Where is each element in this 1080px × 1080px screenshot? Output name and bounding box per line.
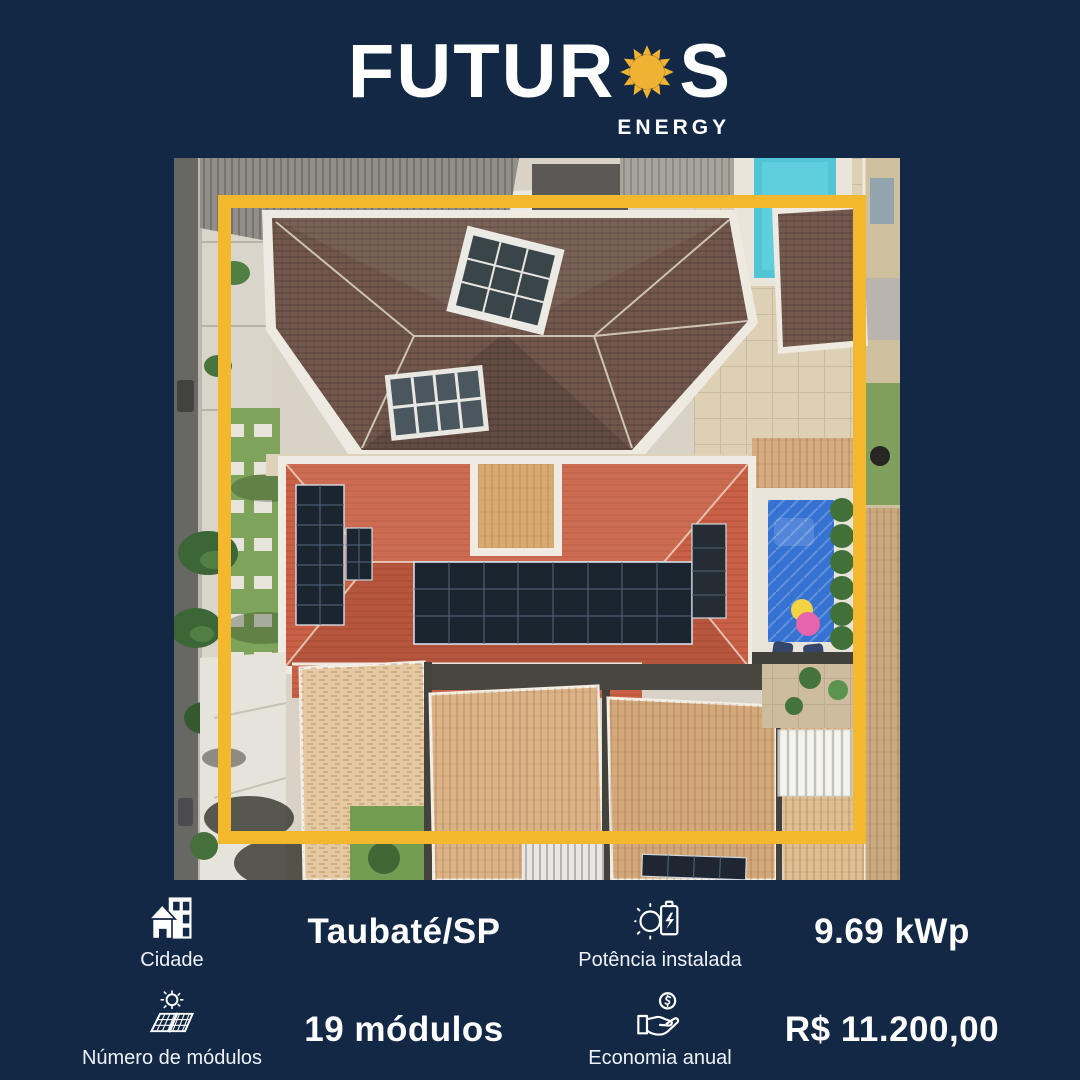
brand-name-prefix: FUTUR <box>348 34 616 110</box>
stat-value-modules: 19 módulos <box>280 1010 528 1050</box>
sun-icon <box>616 41 678 103</box>
brand-logo-box: FUTUR <box>348 34 732 140</box>
poster: FUTUR <box>0 0 1080 1080</box>
yellow-highlight-frame <box>218 195 866 844</box>
brand-subtitle: ENERGY <box>617 116 730 140</box>
stat-modules: Número de módulos 19 módulos <box>64 986 528 1074</box>
stats-grid: Cidade Taubaté/SP Potência instalada 9.6… <box>0 888 1080 1074</box>
city-buildings-icon <box>146 892 198 944</box>
stat-savings: Economia anual R$ 11.200,00 <box>552 986 1016 1074</box>
sun-solar-panel-icon <box>146 990 198 1042</box>
stat-value-savings: R$ 11.200,00 <box>768 1010 1016 1050</box>
hand-coin-icon <box>634 990 686 1042</box>
stat-value-city: Taubaté/SP <box>280 912 528 952</box>
brand-name-suffix: S <box>679 34 732 110</box>
brand-logo: FUTUR <box>0 34 1080 140</box>
stat-label-modules: Número de módulos <box>82 1047 262 1070</box>
stat-value-power: 9.69 kWp <box>768 912 1016 952</box>
stat-label-savings: Economia anual <box>588 1047 731 1070</box>
stat-label-city: Cidade <box>140 949 203 972</box>
aerial-photo <box>174 158 900 880</box>
stat-power: Potência instalada 9.69 kWp <box>552 888 1016 976</box>
stat-city: Cidade Taubaté/SP <box>64 888 528 976</box>
brand-wordmark: FUTUR <box>348 34 732 110</box>
sun-battery-icon <box>634 892 686 944</box>
stat-label-power: Potência instalada <box>578 949 741 972</box>
